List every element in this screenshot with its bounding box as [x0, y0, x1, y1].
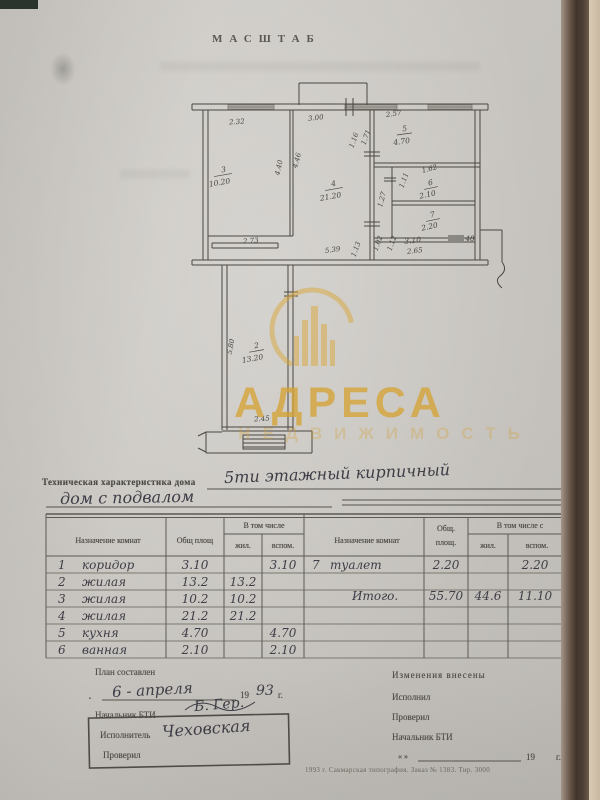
plan-room-number: 6: [427, 178, 434, 188]
print-shop-line: 1993 г. Сакмарская типография. Заказ № 1…: [305, 766, 490, 774]
row-num: 3: [58, 592, 66, 606]
checked-label: Проверил: [392, 712, 430, 722]
totals-total: 55.70: [424, 589, 468, 603]
watermark-subtext: НЕДВИЖИМОСТЬ: [195, 424, 575, 444]
row-aux: 2.10: [264, 643, 302, 657]
tech-characteristic-label: Техническая характеристика дома: [42, 477, 196, 487]
row-name: жилая: [82, 609, 126, 623]
row-total: 3.10: [168, 558, 222, 572]
plan-dim: 2.65: [406, 246, 424, 256]
col-header-total-area: Общ площ: [168, 536, 222, 545]
col-header-room-purpose-2: Назначение комнат: [310, 536, 424, 545]
row-num: 2: [58, 575, 66, 589]
book-edge-light: [589, 0, 600, 800]
plan-dim: 2.73: [242, 236, 260, 245]
plan-dim: 1.16: [348, 131, 361, 149]
row-living: 13.2: [224, 575, 262, 589]
bleed-through-text: [160, 62, 480, 71]
blank-date-quotes: « »: [398, 752, 408, 761]
row-name: жилая: [82, 575, 126, 589]
plan-dim: 5.39: [324, 245, 341, 255]
row-num: 1: [58, 558, 66, 572]
plan-dim: 1.13: [350, 240, 363, 258]
plan-dim: 4.46: [291, 151, 303, 170]
col-header-including: В том числе: [224, 521, 304, 530]
row-num: 5: [58, 626, 66, 640]
bti-chief-label: Начальник БТИ: [392, 732, 453, 742]
ink-smudge: [50, 52, 76, 86]
row-living: 10.2: [224, 592, 262, 606]
bti-chief-label: Начальник БТИ: [95, 710, 156, 720]
plan-dim: 1.12: [386, 234, 399, 252]
tech-characteristic-handwritten-1: 5ти этажный кирпичный: [224, 460, 451, 487]
page-title: МАСШТАБ: [212, 33, 321, 45]
plan-dim: 1.11: [398, 172, 411, 189]
blank-year-prefix: 19: [526, 752, 535, 762]
col-header-total-area-2b: площ.: [424, 538, 468, 547]
plan-room-area: 21.20: [318, 190, 342, 203]
col-header-room-purpose: Назначение комнат: [50, 536, 166, 545]
row-aux: 2.20: [510, 558, 560, 572]
scanned-document-photo: МАСШТАБ: [0, 0, 600, 800]
photo-corner-shadow: [0, 0, 38, 9]
executor-label: Исполнитель: [100, 730, 150, 740]
plan-room-number: 2: [252, 341, 259, 351]
row-total: 2.10: [168, 643, 222, 657]
col-header-aux-2: вспом.: [508, 541, 566, 550]
done-by-label: Исполнил: [392, 692, 430, 702]
plan-room-area: 10.20: [208, 176, 231, 189]
col-header-living-2: жил.: [468, 541, 508, 550]
plan-dim: 2.57: [384, 109, 402, 119]
row-aux: 3.10: [264, 558, 302, 572]
plan-room-area: 4.70: [392, 136, 411, 147]
row-total: 21.2: [168, 609, 222, 623]
checked-label: Проверил: [103, 750, 141, 760]
plan-room-area: 3.10: [404, 235, 422, 246]
plan-room-number: 3: [220, 165, 226, 175]
row-name: ванная: [82, 643, 127, 657]
watermark-building-icon: [257, 275, 366, 384]
printed-year-suffix: г.: [278, 690, 283, 700]
plan-room-area: 2.10: [417, 188, 436, 201]
row-name: коридор: [82, 558, 134, 572]
row-num: 7: [312, 558, 320, 572]
plan-dim: 3.00: [308, 113, 325, 123]
row-num: 6: [58, 643, 66, 657]
row-aux: 4.70: [264, 626, 302, 640]
row-name: кухня: [82, 626, 119, 640]
plan-dim: 1.27: [376, 190, 388, 208]
executor-signature: Чеховская: [161, 716, 251, 741]
plan-compiled-label: План составлен: [95, 667, 155, 677]
plan-room-area: 2.20: [419, 220, 438, 233]
col-header-total-area-2a: Общ.: [424, 524, 468, 533]
col-header-aux: вспом.: [262, 541, 304, 550]
plan-dim: 48: [465, 235, 475, 243]
totals-living: 44.6: [468, 589, 508, 603]
handwritten-year: 93: [256, 683, 274, 699]
row-living: 21.2: [224, 609, 262, 623]
plan-dim: 1.71: [360, 129, 373, 146]
col-header-living: жил.: [224, 541, 262, 550]
plan-room-number: 5: [402, 124, 408, 134]
totals-label: Итого.: [352, 589, 398, 603]
row-name: жилая: [82, 592, 126, 606]
handwritten-date: 6 - апреля: [112, 679, 194, 701]
bleed-through-text: [120, 170, 190, 178]
row-name: туалет: [330, 558, 382, 572]
book-edge-dark: [561, 0, 589, 800]
plan-dim: 5.80: [226, 338, 237, 355]
tech-characteristic-handwritten-2: дом с подвалом: [60, 487, 194, 508]
plan-dim: 1.02: [372, 234, 385, 252]
row-total: 4.70: [168, 626, 222, 640]
plan-dim: 2.32: [228, 117, 246, 126]
watermark-brand-text: АДРЕСА: [185, 379, 495, 428]
plan-room-area: 13.20: [241, 352, 264, 365]
row-total: 13.2: [168, 575, 222, 589]
col-header-including-2: В том числе с: [468, 521, 572, 530]
plan-room-number: 7: [429, 210, 436, 220]
totals-aux: 11.10: [510, 589, 560, 603]
row-total: 10.2: [168, 592, 222, 606]
row-num: 4: [58, 609, 66, 623]
plan-dim: 1.62: [421, 163, 439, 175]
plan-dimension-labels: 2.32 3.00 2.57 5 4.70 3 10.20 4.40 4.46 …: [208, 109, 475, 424]
changes-made-label: Изменения внесены: [392, 670, 486, 680]
handwritten-dot: .: [88, 688, 92, 702]
plan-dim: 4.40: [273, 159, 284, 177]
row-total: 2.20: [424, 558, 468, 572]
bti-chief-signature: Б. Гер.: [193, 695, 244, 715]
plan-room-number: 4: [329, 179, 336, 189]
